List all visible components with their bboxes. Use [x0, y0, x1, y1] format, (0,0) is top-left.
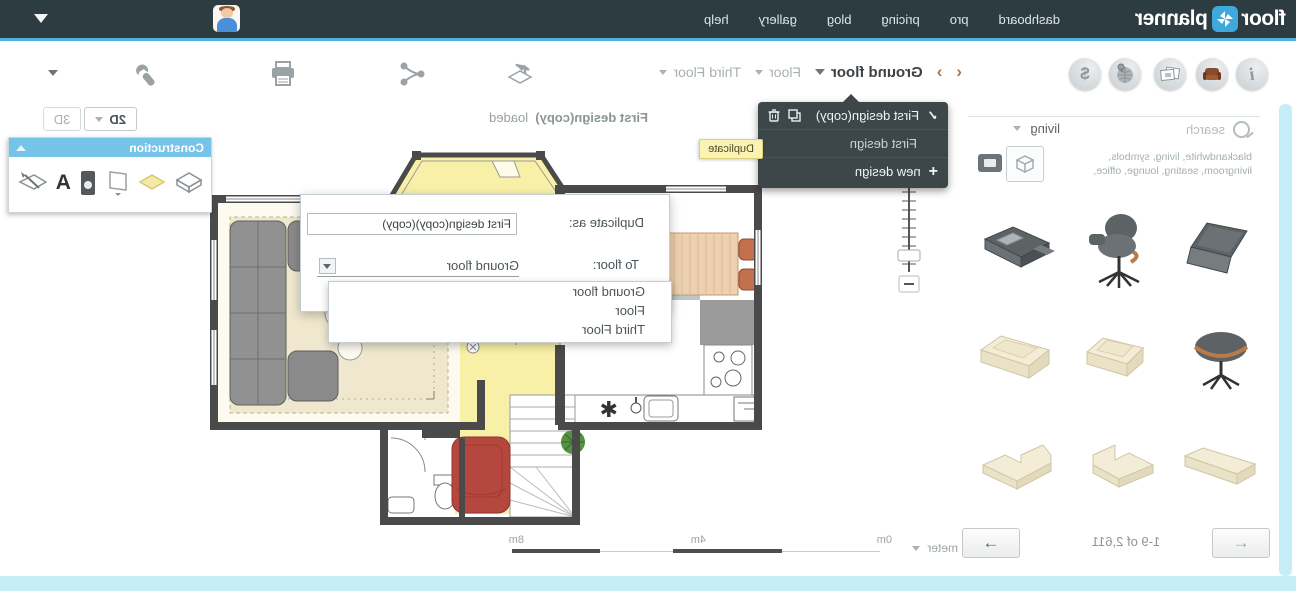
- header-bar: [0, 0, 1296, 38]
- category-label: living: [1030, 121, 1060, 136]
- scale-segment: [673, 549, 782, 553]
- floor2-label: Floor: [769, 64, 801, 80]
- prev-page-button[interactable]: ←: [1212, 528, 1270, 558]
- nav-pricing[interactable]: pricing: [881, 12, 919, 27]
- tags-line1: blackandwhite, living, symbols,: [1047, 150, 1252, 164]
- duplicate-as-label: Duplicate as:: [569, 215, 644, 230]
- avatar-face: [221, 8, 233, 18]
- furniture-button[interactable]: [1196, 58, 1228, 90]
- ottoman-icon: [1177, 319, 1265, 399]
- chevron-down-icon: [815, 69, 825, 75]
- cube-icon: [1015, 154, 1035, 174]
- menu-item-label: First design: [768, 136, 938, 151]
- sofa-icon: [973, 324, 1061, 394]
- export-button[interactable]: [504, 58, 536, 90]
- menu-item-first-design-copy[interactable]: ✓ First design(copy): [758, 102, 948, 130]
- current-floor-label: Ground floor: [831, 64, 923, 81]
- floor-option-third[interactable]: Third Floor: [329, 320, 671, 339]
- status-message: First design(copy) loaded: [489, 110, 648, 125]
- info-button[interactable]: i: [1236, 58, 1268, 90]
- category-tags: blackandwhite, living, symbols, livingro…: [1047, 150, 1252, 178]
- draw-surface-tool-icon[interactable]: [138, 171, 166, 195]
- floor-navigation: ‹ › Ground floor Floor Third Floor: [659, 58, 962, 86]
- corner-sofa-icon: [1075, 431, 1163, 501]
- nav-help[interactable]: help: [704, 12, 729, 27]
- view-3d-button[interactable]: 3D: [43, 107, 82, 131]
- selected-floor-value: Ground floor: [447, 258, 519, 273]
- library-item[interactable]: [1068, 305, 1170, 412]
- search-placeholder: search: [1186, 122, 1225, 137]
- view-mode-toggle: 2D 3D: [43, 107, 137, 131]
- construction-title: Construction: [129, 141, 204, 155]
- floor-options-list: Ground floor Floor Third Floor: [328, 281, 672, 343]
- duplicate-icon[interactable]: [788, 109, 801, 122]
- category-dropdown[interactable]: living: [1013, 121, 1060, 136]
- tags-line2: livingroom, seating, lounge, office,: [1047, 164, 1252, 178]
- corner-sofa-icon: [973, 431, 1061, 501]
- nav-dashboard[interactable]: dashboard: [999, 12, 1060, 27]
- chevron-down-icon: [324, 264, 332, 269]
- monitor-icon: [984, 159, 996, 167]
- console-desk-icon: [973, 213, 1061, 291]
- bottom-scrollbar[interactable]: [0, 576, 1296, 591]
- geo-button[interactable]: [1109, 58, 1141, 90]
- scale-segment: [512, 549, 600, 553]
- svg-text:✱: ✱: [600, 398, 618, 423]
- share-button[interactable]: [396, 58, 428, 90]
- floorplanner-window: floor planner dashboard pro pricing blog…: [0, 0, 1296, 591]
- library-item[interactable]: [1068, 413, 1170, 520]
- zoom-slider[interactable]: [896, 188, 922, 300]
- arrow-left-icon: ←: [1233, 533, 1250, 553]
- chevron-down-icon: [755, 70, 763, 75]
- nav-gallery[interactable]: gallery: [759, 12, 797, 27]
- library-grid: [966, 198, 1272, 520]
- avatar-body: [217, 18, 237, 32]
- zoom-slider-track: [896, 188, 922, 300]
- loveseat-icon: [1075, 324, 1163, 394]
- sidebar-scrollbar[interactable]: [1279, 104, 1292, 576]
- to-floor-label: To floor:: [593, 257, 639, 272]
- nav-pro[interactable]: pro: [950, 12, 969, 27]
- view-2d-label: 2D: [109, 112, 126, 127]
- menu-pointer: [842, 94, 860, 103]
- floor-dropdown-current[interactable]: Ground floor: [815, 64, 923, 81]
- print-button[interactable]: [267, 58, 299, 90]
- duplicate-name-input[interactable]: [307, 213, 517, 235]
- door-tool-icon[interactable]: [79, 169, 97, 197]
- header-accent-line: [0, 38, 1296, 41]
- currency-button[interactable]: $: [1069, 58, 1101, 90]
- library-item[interactable]: [966, 413, 1068, 520]
- scale-tick-8m: 8m: [509, 534, 524, 546]
- photos-icon: [1159, 64, 1181, 84]
- logo-text-planner: planner: [1135, 7, 1207, 31]
- arrow-right-icon: →: [983, 533, 1000, 553]
- status-design-name: First design(copy): [535, 110, 648, 125]
- draw-wall-tool-icon[interactable]: [106, 170, 130, 196]
- status-suffix: loaded: [489, 110, 528, 125]
- unit-selector[interactable]: meter: [912, 541, 958, 555]
- library-item[interactable]: [966, 198, 1068, 305]
- user-avatar[interactable]: [213, 5, 240, 32]
- share-icon: [397, 61, 427, 87]
- library-item[interactable]: [1170, 305, 1272, 412]
- duplicate-tooltip: Duplicate: [699, 139, 763, 159]
- floor3-label: Third Floor: [673, 64, 741, 80]
- logo-text-floor: floor: [1242, 7, 1286, 31]
- floor-dropdown-2[interactable]: Floor: [755, 64, 801, 80]
- scale-tick-4m: 4m: [691, 534, 706, 546]
- laptop-icon: [1177, 213, 1265, 291]
- prev-floor-chevron-icon[interactable]: ‹: [956, 62, 962, 82]
- chevron-down-icon: [95, 117, 103, 122]
- trash-icon[interactable]: [768, 109, 780, 122]
- user-menu-caret-icon[interactable]: [34, 14, 48, 23]
- wrench-icon: [128, 59, 158, 89]
- pagination-label: 1-9 of 2,611: [1046, 534, 1206, 549]
- construction-tools: A: [9, 157, 211, 209]
- menu-item-label: First design(copy): [809, 108, 919, 123]
- export-arrow-icon: [505, 61, 535, 87]
- chevron-down-icon: [1013, 126, 1021, 131]
- next-floor-chevron-icon[interactable]: ›: [937, 62, 943, 82]
- printer-icon: [269, 60, 297, 88]
- bench-sofa-icon: [1177, 434, 1265, 498]
- designs-dropdown-menu: ✓ First design(copy) First design + new …: [758, 102, 948, 188]
- main-nav: dashboard pro pricing blog gallery help: [704, 0, 1060, 38]
- settings-button[interactable]: [127, 58, 159, 90]
- armchair-icon: [1202, 64, 1222, 84]
- construction-panel-header[interactable]: Construction: [9, 138, 211, 157]
- floor-option-floor[interactable]: Floor: [329, 301, 671, 320]
- view-2d-button[interactable]: 2D: [84, 107, 137, 131]
- to-floor-select[interactable]: Ground floor: [317, 255, 519, 277]
- snapshots-button[interactable]: [1154, 58, 1186, 90]
- view-2d-items-button[interactable]: [978, 154, 1002, 172]
- menu-item-new-design[interactable]: + new design: [758, 158, 948, 185]
- draw-room-tool-icon[interactable]: [175, 171, 203, 195]
- select-caret-box[interactable]: [319, 258, 336, 274]
- floor-option-ground[interactable]: Ground floor: [329, 282, 671, 301]
- library-item[interactable]: [1170, 413, 1272, 520]
- menu-item-first-design[interactable]: First design: [758, 130, 948, 158]
- unit-label: meter: [927, 541, 958, 555]
- chevron-down-icon: [659, 70, 667, 75]
- construction-panel: Construction A: [8, 137, 212, 213]
- menu-item-label: new design: [768, 164, 921, 179]
- plus-icon: +: [929, 163, 938, 181]
- library-item[interactable]: [1170, 198, 1272, 305]
- search-icon: [1233, 121, 1250, 138]
- view-3d-label: 3D: [54, 112, 71, 127]
- chevron-down-icon: [912, 546, 920, 551]
- text-tool-icon[interactable]: A: [56, 171, 71, 195]
- floor-dropdown-3[interactable]: Third Floor: [659, 64, 741, 80]
- info-icon: i: [1250, 64, 1255, 85]
- dollar-icon: $: [1080, 64, 1089, 84]
- lounge-chair-icon: [1075, 208, 1163, 296]
- view-3d-items-button[interactable]: [1006, 146, 1044, 182]
- dimension-tool-icon[interactable]: [17, 171, 47, 195]
- library-item[interactable]: [1068, 198, 1170, 305]
- more-tools-caret-icon[interactable]: [48, 70, 58, 76]
- globe-pin-icon: [1114, 63, 1136, 85]
- scale-tick-0m: 0m: [877, 534, 892, 546]
- check-icon: ✓: [927, 108, 938, 124]
- library-pagination: ← 1-9 of 2,611 →: [960, 528, 1296, 560]
- collapse-arrow-icon[interactable]: [16, 145, 26, 151]
- app-logo[interactable]: floor planner: [1135, 5, 1286, 33]
- library-search[interactable]: search: [1186, 121, 1250, 138]
- next-page-button[interactable]: →: [962, 528, 1020, 558]
- sidebar-divider: [968, 116, 1260, 117]
- nav-blog[interactable]: blog: [827, 12, 852, 27]
- library-item[interactable]: [966, 305, 1068, 412]
- pinwheel-logo-icon: [1212, 6, 1238, 32]
